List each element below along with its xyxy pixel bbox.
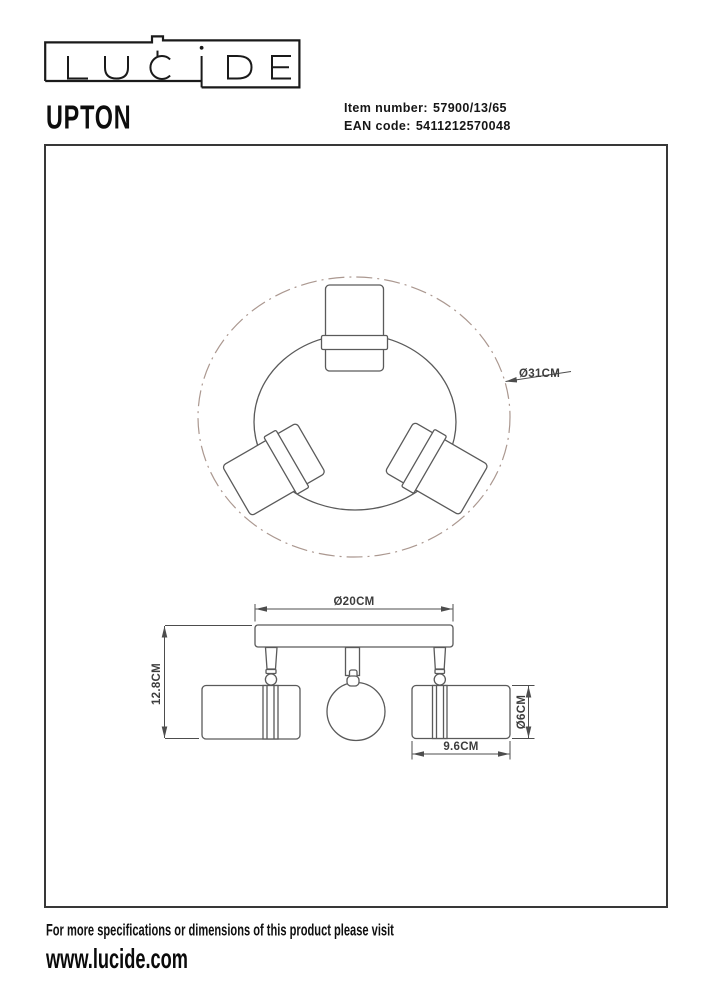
ean-label: EAN code: bbox=[344, 119, 411, 133]
item-number-value: 57900/13/65 bbox=[428, 101, 507, 115]
product-title: UPTON bbox=[46, 100, 131, 137]
item-number-row: Item number:57900/13/65 bbox=[344, 99, 511, 117]
lucide-logo bbox=[40, 32, 306, 94]
footer-note: For more specifications or dimensions of… bbox=[46, 921, 394, 940]
product-spec-sheet: UPTON Item number:57900/13/65 EAN code:5… bbox=[0, 0, 707, 1000]
logo-i-dot bbox=[200, 46, 204, 50]
website-url: www.lucide.com bbox=[46, 943, 188, 976]
product-info: Item number:57900/13/65 EAN code:5411212… bbox=[344, 99, 511, 135]
ean-row: EAN code:5411212570048 bbox=[344, 117, 511, 135]
drawing-frame bbox=[44, 144, 668, 908]
ean-value: 5411212570048 bbox=[411, 119, 511, 133]
item-number-label: Item number: bbox=[344, 101, 428, 115]
logo-box bbox=[45, 36, 299, 87]
